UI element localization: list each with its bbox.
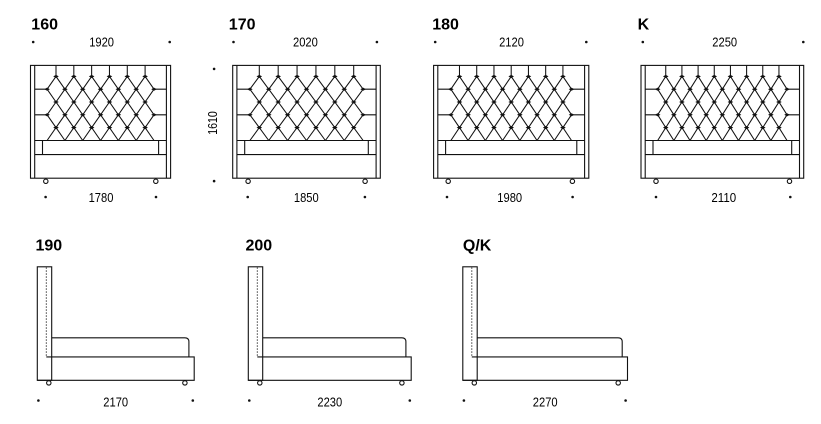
svg-text:200: 200 (246, 237, 273, 254)
svg-text:1610: 1610 (205, 111, 220, 135)
svg-text:180: 180 (432, 17, 459, 34)
svg-text:2020: 2020 (293, 35, 318, 50)
svg-text:2270: 2270 (533, 395, 558, 410)
svg-text:160: 160 (31, 17, 58, 34)
svg-text:2230: 2230 (317, 395, 342, 410)
svg-text:1780: 1780 (89, 190, 114, 205)
svg-text:2110: 2110 (711, 190, 736, 205)
svg-text:2250: 2250 (712, 35, 737, 50)
svg-text:190: 190 (36, 237, 63, 254)
svg-text:1920: 1920 (89, 35, 114, 50)
svg-text:K: K (638, 17, 650, 34)
svg-text:1850: 1850 (294, 190, 319, 205)
svg-text:2170: 2170 (103, 395, 128, 410)
svg-text:Q/K: Q/K (463, 237, 492, 254)
svg-text:1980: 1980 (497, 190, 522, 205)
svg-text:170: 170 (229, 17, 256, 34)
svg-text:2120: 2120 (499, 35, 524, 50)
